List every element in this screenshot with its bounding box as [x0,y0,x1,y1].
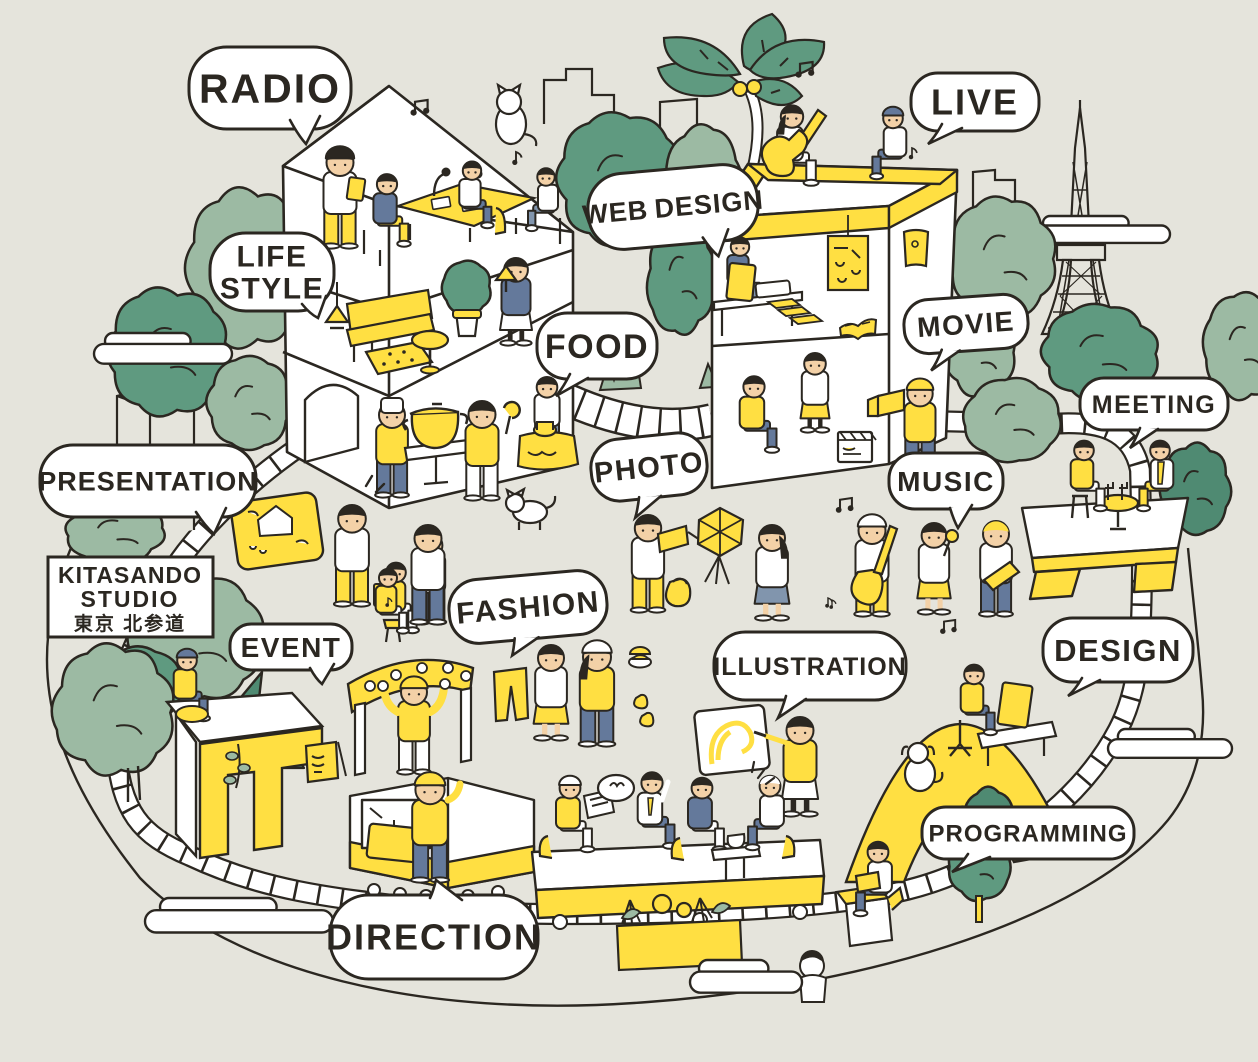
svg-text:ILLUSTRATION: ILLUSTRATION [713,653,906,681]
svg-text:STUDIO: STUDIO [81,586,180,612]
svg-text:STYLE: STYLE [220,273,324,306]
svg-text:DESIGN: DESIGN [1054,633,1182,668]
svg-text:東京 北参道: 東京 北参道 [74,612,186,635]
svg-text:PROGRAMMING: PROGRAMMING [929,820,1128,847]
svg-text:DIRECTION: DIRECTION [326,917,542,958]
svg-text:MUSIC: MUSIC [897,466,995,497]
svg-text:LIFE: LIFE [237,240,308,273]
svg-text:FOOD: FOOD [545,328,649,366]
svg-text:PRESENTATION: PRESENTATION [38,466,258,496]
svg-text:RADIO: RADIO [199,65,341,111]
svg-text:EVENT: EVENT [241,632,342,663]
svg-text:MEETING: MEETING [1092,391,1216,419]
svg-text:KITASANDO: KITASANDO [58,562,202,588]
svg-text:LIVE: LIVE [931,82,1019,123]
